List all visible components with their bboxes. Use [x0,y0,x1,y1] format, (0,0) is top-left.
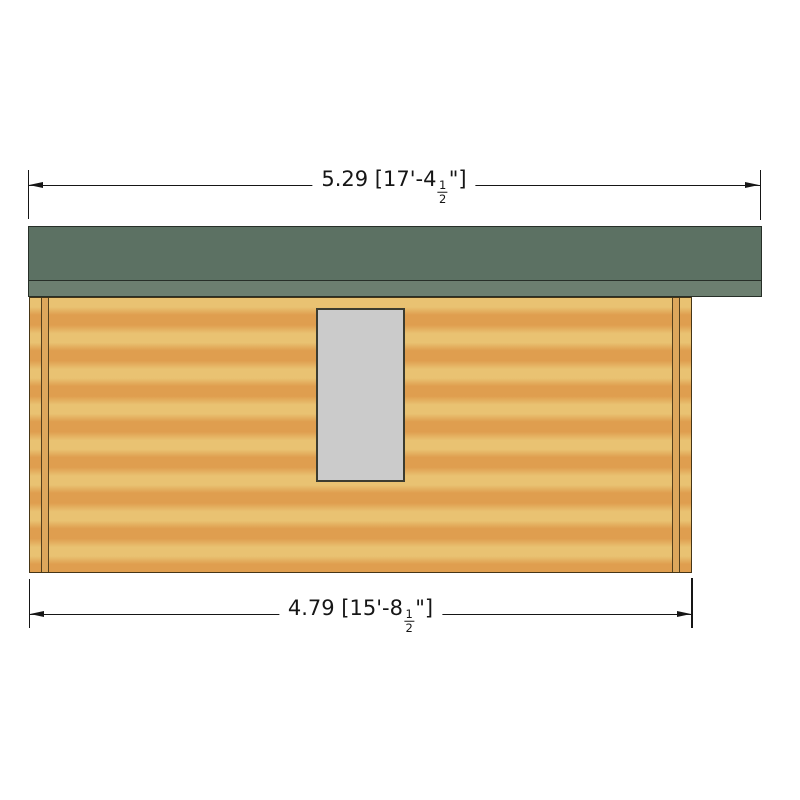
window [316,308,405,482]
bottom-dimension-arrow-right-icon [677,611,691,617]
bottom-dimension-extension-line-right [691,578,693,628]
wall-width-label-suffix: "] [415,596,433,620]
roof [28,226,762,297]
top-dimension-arrow-right-icon [745,182,759,188]
top-dimension-extension-line-right [760,170,762,220]
wall-width-label-fraction: 12 [404,608,414,634]
roof-width-label-fraction: 12 [437,179,447,205]
fraction-denominator: 2 [439,193,446,206]
top-dimension-extension-line-left [28,170,30,219]
roof-width-dimension-label: 5.29 [17'-412"] [312,167,475,206]
wall-width-label-prefix: 4.79 [15'-8 [288,596,403,620]
corner-log-post-left [41,298,49,572]
roof-width-label-prefix: 5.29 [17'-4 [321,167,436,191]
bottom-dimension-arrow-left-icon [30,611,44,617]
fraction-numerator: 1 [437,179,447,193]
fraction-denominator: 2 [405,622,412,635]
roof-fascia [29,280,761,296]
wall-width-dimension-label: 4.79 [15'-812"] [279,596,442,635]
elevation-drawing-canvas: 5.29 [17'-412"] 4.79 [15'-812"] [0,0,800,800]
roof-width-label-suffix: "] [449,167,467,191]
top-dimension-arrow-left-icon [29,182,43,188]
fraction-numerator: 1 [404,608,414,622]
corner-log-post-right [672,298,680,572]
bottom-dimension-extension-line-left [29,579,31,628]
